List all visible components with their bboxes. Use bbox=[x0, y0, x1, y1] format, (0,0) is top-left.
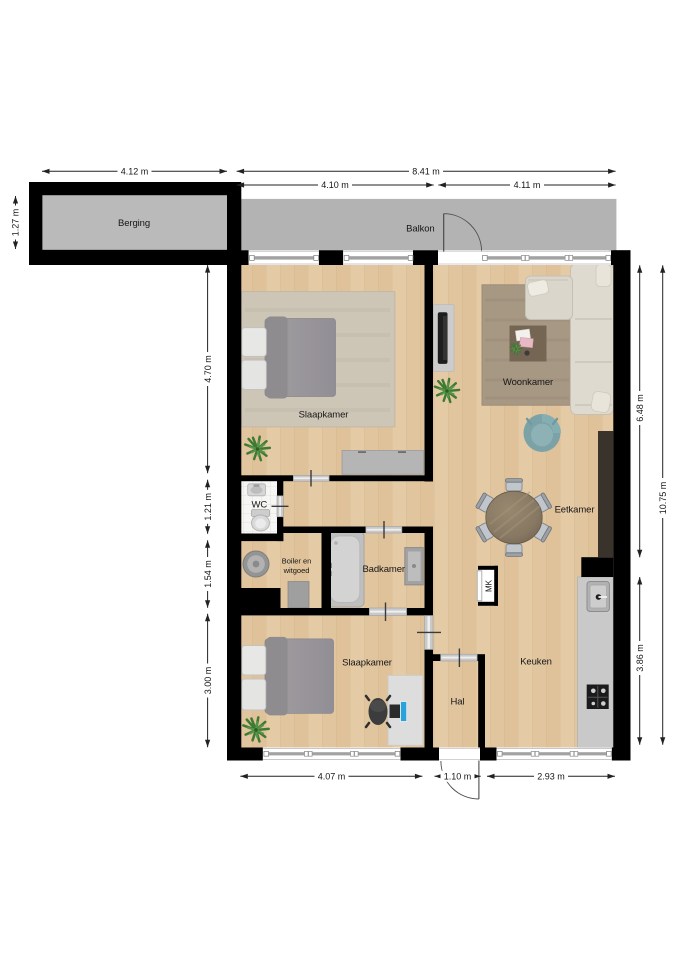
svg-text:Eetkamer: Eetkamer bbox=[555, 504, 595, 515]
svg-text:4.10 m: 4.10 m bbox=[321, 180, 349, 190]
svg-text:Hal: Hal bbox=[451, 696, 465, 707]
svg-text:WC: WC bbox=[251, 499, 267, 510]
svg-text:3.00 m: 3.00 m bbox=[203, 667, 213, 695]
svg-text:Badkamer: Badkamer bbox=[362, 564, 405, 575]
svg-text:4.11 m: 4.11 m bbox=[514, 180, 541, 190]
svg-text:2.93 m: 2.93 m bbox=[537, 772, 565, 782]
svg-text:Woonkamer: Woonkamer bbox=[503, 377, 553, 388]
svg-text:Slaapkamer: Slaapkamer bbox=[342, 657, 392, 668]
svg-text:3.86 m: 3.86 m bbox=[635, 644, 645, 672]
svg-text:witgoed: witgoed bbox=[283, 566, 310, 575]
svg-text:10.75 m: 10.75 m bbox=[658, 482, 668, 515]
svg-text:4.12 m: 4.12 m bbox=[121, 167, 149, 177]
svg-text:8.41 m: 8.41 m bbox=[412, 167, 440, 177]
svg-text:Berging: Berging bbox=[118, 218, 150, 229]
svg-text:Boiler en: Boiler en bbox=[282, 557, 312, 566]
svg-text:1.21 m: 1.21 m bbox=[203, 493, 213, 521]
svg-text:Keuken: Keuken bbox=[520, 656, 552, 667]
svg-text:1.10 m: 1.10 m bbox=[444, 772, 472, 782]
svg-text:Balkon: Balkon bbox=[406, 224, 434, 235]
svg-text:4.70 m: 4.70 m bbox=[203, 355, 213, 383]
svg-text:1.54 m: 1.54 m bbox=[203, 560, 213, 588]
svg-text:6.48 m: 6.48 m bbox=[635, 394, 645, 422]
svg-text:MK: MK bbox=[485, 579, 494, 592]
svg-text:Slaapkamer: Slaapkamer bbox=[299, 409, 349, 420]
svg-text:1.27 m: 1.27 m bbox=[11, 209, 21, 237]
svg-text:4.07 m: 4.07 m bbox=[318, 772, 346, 782]
